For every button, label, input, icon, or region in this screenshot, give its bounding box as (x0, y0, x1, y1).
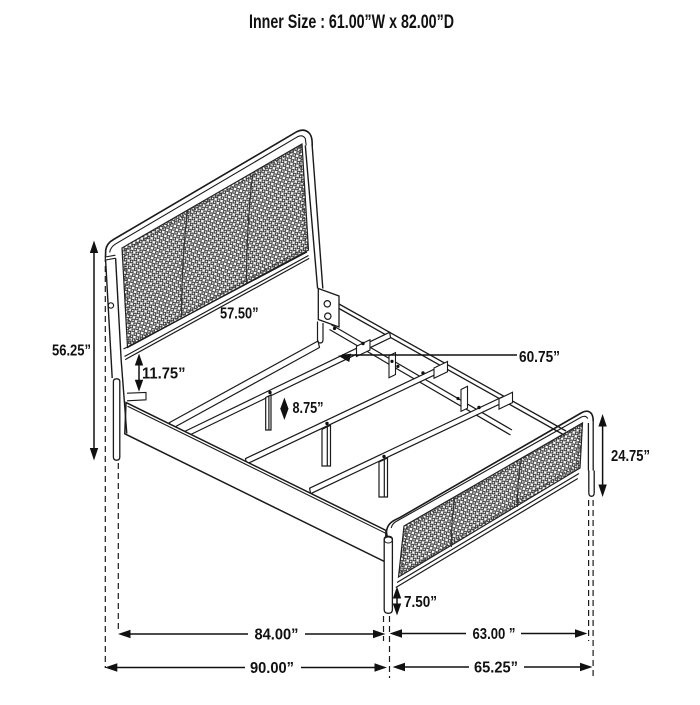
svg-text:60.75”: 60.75” (519, 349, 560, 366)
svg-text:63.00 ”: 63.00 ” (473, 626, 516, 643)
svg-text:7.50”: 7.50” (404, 594, 437, 611)
svg-text:24.75”: 24.75” (611, 448, 650, 465)
svg-text:8.75”: 8.75” (293, 400, 324, 417)
svg-text:90.00”: 90.00” (250, 660, 294, 677)
svg-text:56.25”: 56.25” (52, 343, 91, 360)
svg-text:11.75”: 11.75” (142, 366, 186, 383)
svg-text:65.25”: 65.25” (474, 660, 518, 677)
svg-text:Inner Size : 61.00”W x 82.00”D: Inner Size : 61.00”W x 82.00”D (249, 11, 454, 33)
svg-text:57.50”: 57.50” (220, 306, 259, 323)
svg-text:84.00”: 84.00” (255, 627, 299, 644)
